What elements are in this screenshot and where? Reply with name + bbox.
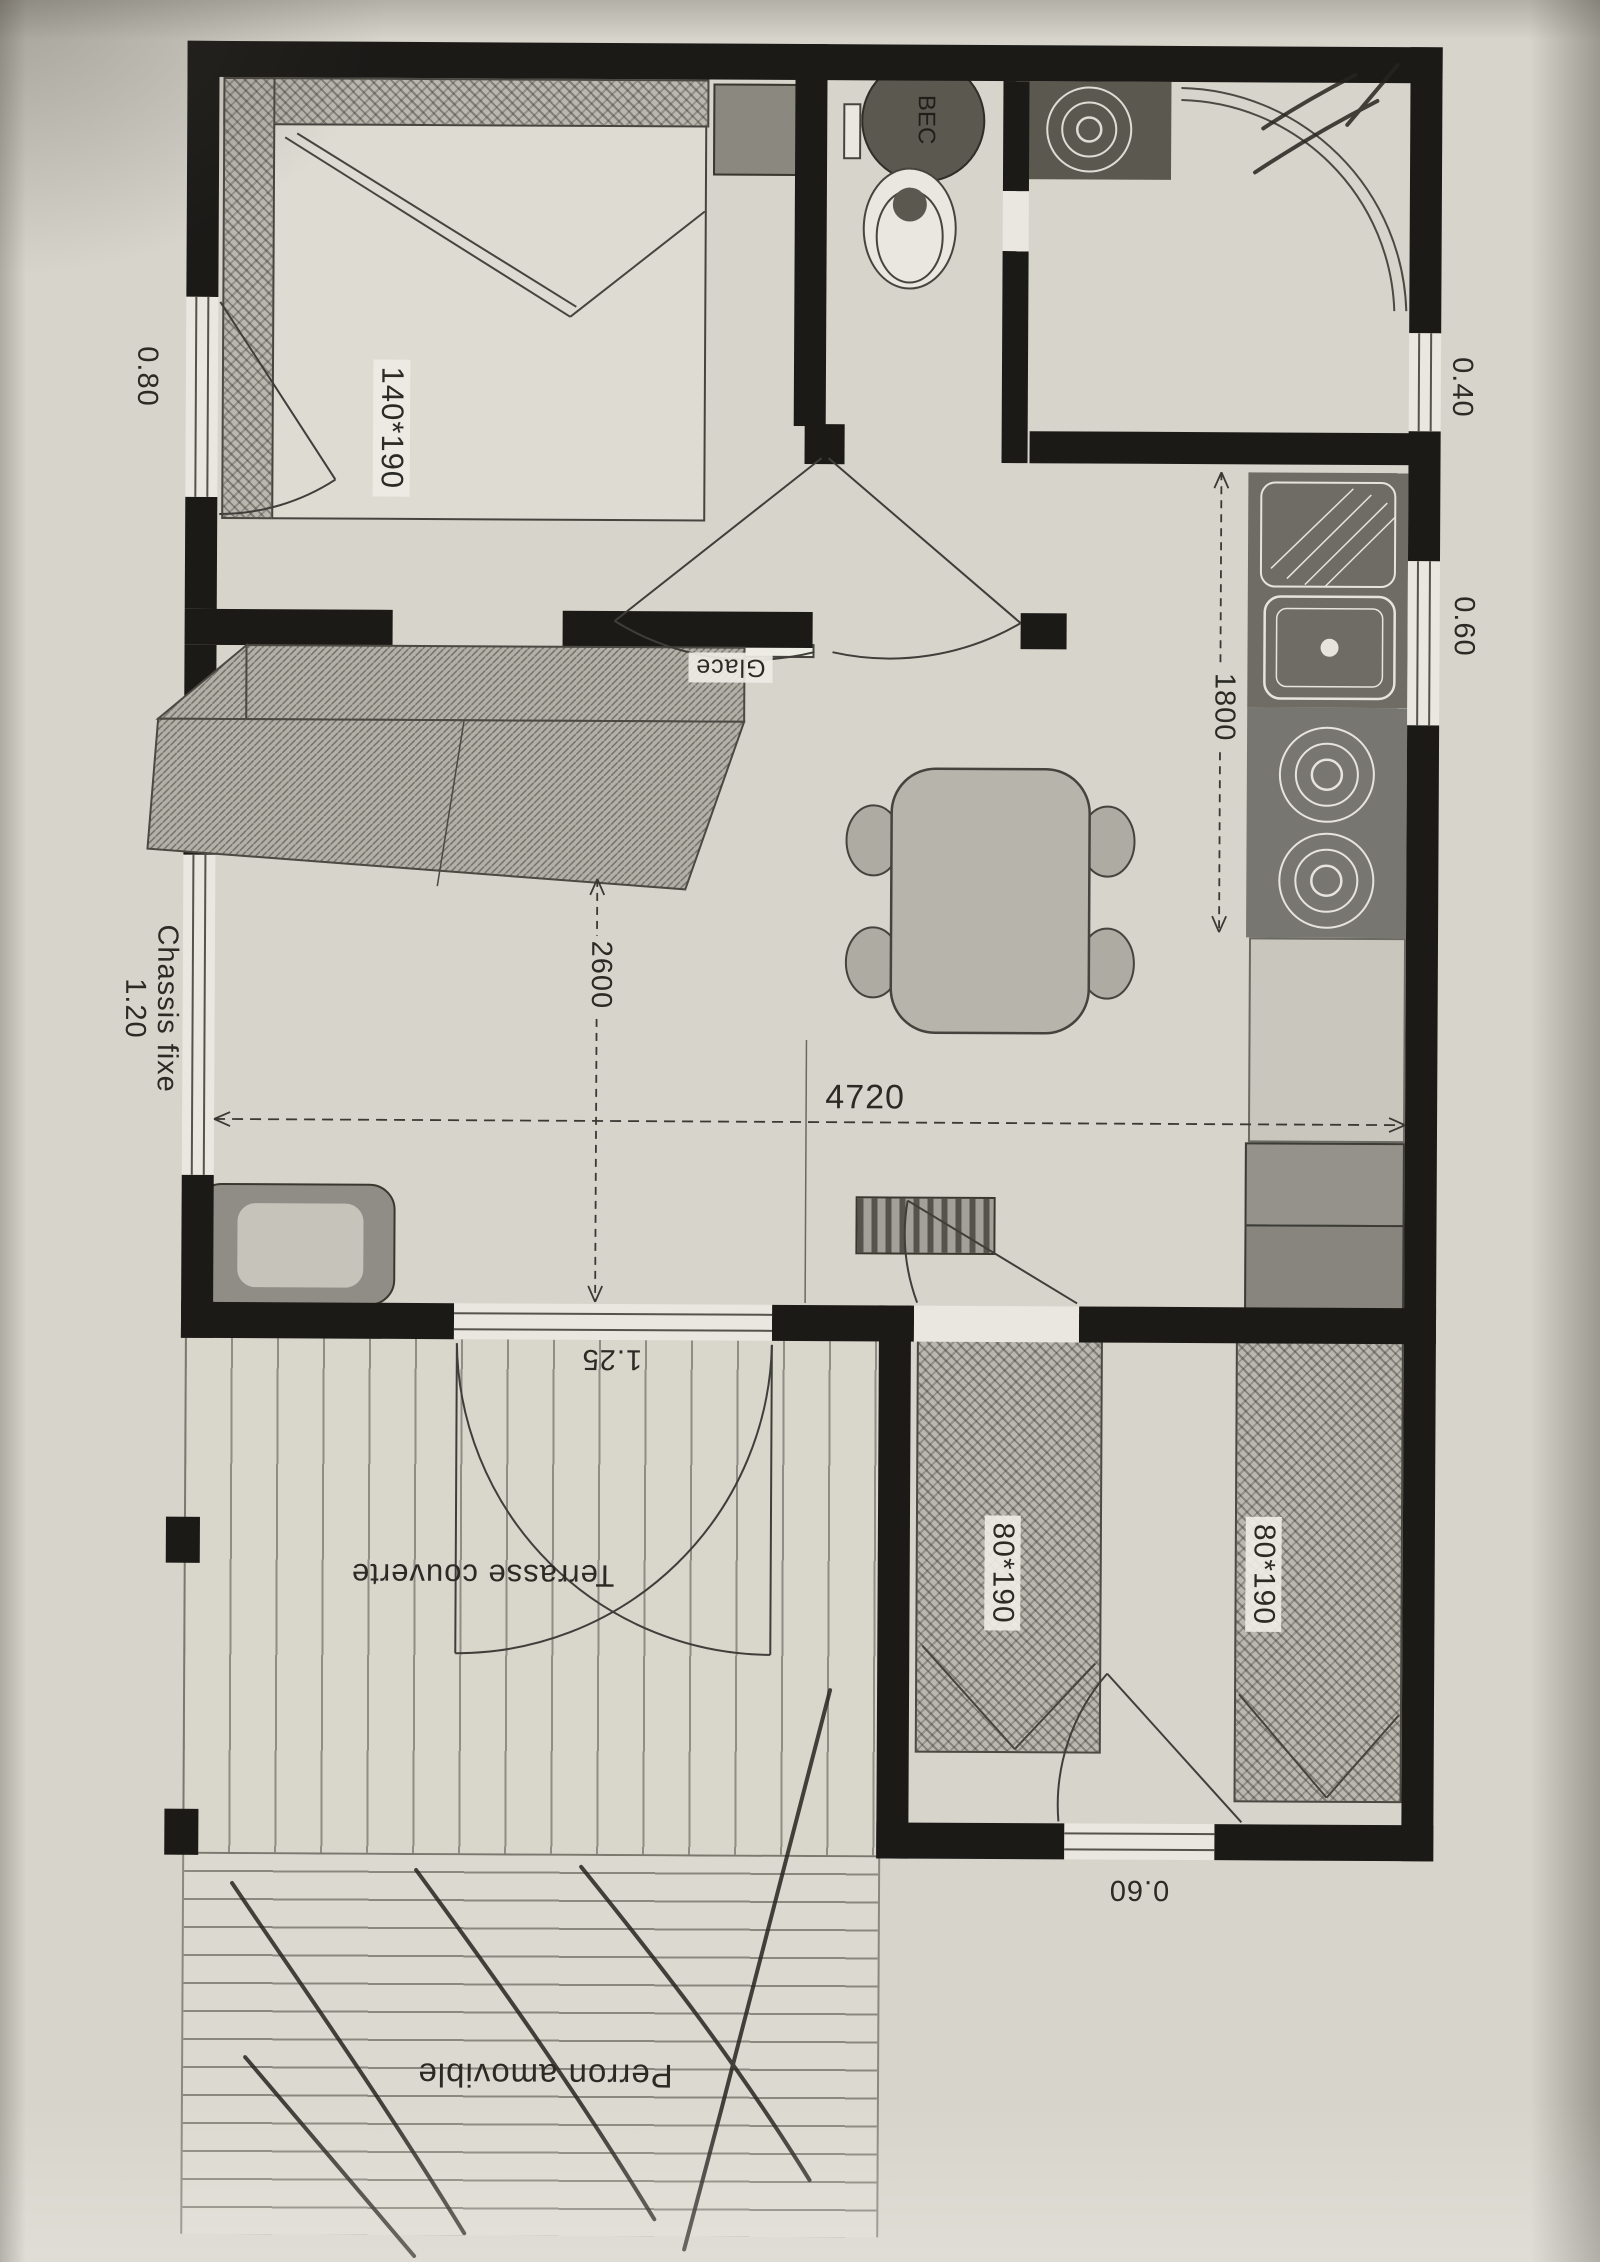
floor-plan-photo: 0.80 140*190 BEC 0.40 0.60 1800 Glace 26…	[0, 0, 1600, 2262]
steps-area	[180, 1854, 880, 2238]
wall-bedroom1-bathroom	[794, 44, 828, 426]
wall-living-bottom	[1079, 1306, 1436, 1344]
entrance-opening	[454, 1303, 772, 1341]
wall-bedroom1-bottom	[185, 609, 393, 646]
wall-hall-stub	[1021, 613, 1067, 649]
kitchen-hob-unit	[1246, 707, 1407, 938]
shower-tray	[1009, 81, 1172, 180]
water-heater-label: BEC	[912, 95, 939, 144]
terrace-label: Terrasse couverte	[351, 1556, 615, 1592]
wall-left	[185, 497, 218, 609]
shower-glass	[1180, 88, 1407, 311]
wall-shower-bottom	[1029, 431, 1421, 465]
terrace-decking	[182, 1338, 881, 1858]
dimension-living-depth: 2600	[584, 936, 617, 1015]
dining-set	[846, 768, 1135, 1034]
double-bed-mattress	[271, 123, 707, 521]
bench	[855, 1196, 995, 1255]
floor-plan: 0.80 140*190 BEC 0.40 0.60 1800 Glace 26…	[0, 0, 1600, 2262]
dimension-overall-width: 4720	[825, 1078, 905, 1116]
double-bed-side	[221, 77, 275, 519]
dimension-kitchen-counter: 1800	[1208, 668, 1241, 747]
wall-hall-post	[804, 424, 844, 464]
fixed-window-width: 1.20	[118, 924, 151, 1092]
wall-wc-shower	[1002, 251, 1029, 463]
bedroom2-window	[1064, 1823, 1214, 1860]
terrace-post	[166, 1517, 200, 1563]
wall-bedroom2-bottom	[1214, 1824, 1433, 1861]
wall-wc-shower	[1003, 81, 1030, 191]
dimension-kitchen-window: 0.60	[1447, 596, 1480, 657]
kitchen-counter	[1248, 937, 1406, 1143]
steps-label: Perron amovible	[417, 2056, 672, 2094]
fixed-window-label: Chassis fixe 1.20	[118, 924, 184, 1093]
dimension-entrance-door: 1.25	[581, 1343, 642, 1376]
terrace-post	[164, 1809, 198, 1855]
fixed-window-name: Chassis fixe	[150, 924, 183, 1092]
wall-left	[183, 645, 216, 855]
wall-right	[1409, 47, 1442, 333]
wall-left	[186, 41, 219, 297]
dimension-shower-window: 0.40	[1446, 357, 1479, 418]
sofa	[147, 645, 744, 890]
kitchen-window	[1407, 561, 1440, 725]
kitchen-sink-unit	[1247, 472, 1408, 708]
bedroom2-door-opening	[914, 1306, 1079, 1343]
single-bed-left-size-label: 80*190	[985, 1515, 1021, 1630]
dimension-lines	[213, 467, 1408, 1306]
water-heater-bracket	[843, 103, 861, 159]
nightstand	[713, 84, 799, 176]
dimension-bedroom2-window: 0.60	[1109, 1873, 1170, 1906]
mirror-label: Glace	[688, 652, 772, 682]
double-bed-size-label: 140*190	[373, 359, 410, 496]
shower-window	[1409, 333, 1442, 431]
double-bed-headboard	[223, 77, 709, 128]
toilet	[863, 168, 956, 288]
armchair-seat	[237, 1203, 363, 1288]
fixed-window	[182, 855, 216, 1175]
kitchen-unit-low	[1245, 1142, 1405, 1227]
wall-living-bottom	[181, 1302, 454, 1339]
wall-bedroom2-bottom	[876, 1822, 1064, 1859]
single-bed-right-size-label: 80*190	[1246, 1517, 1282, 1632]
wc-shower-opening	[1003, 191, 1029, 251]
wall-bedroom2-left	[876, 1305, 911, 1858]
dimension-bedroom1-door: 0.80	[131, 346, 164, 407]
wall-hall	[563, 611, 813, 648]
bedroom1-door-opening	[185, 297, 218, 497]
wall-right	[1401, 725, 1439, 1861]
kitchen-unit-low	[1244, 1224, 1404, 1311]
